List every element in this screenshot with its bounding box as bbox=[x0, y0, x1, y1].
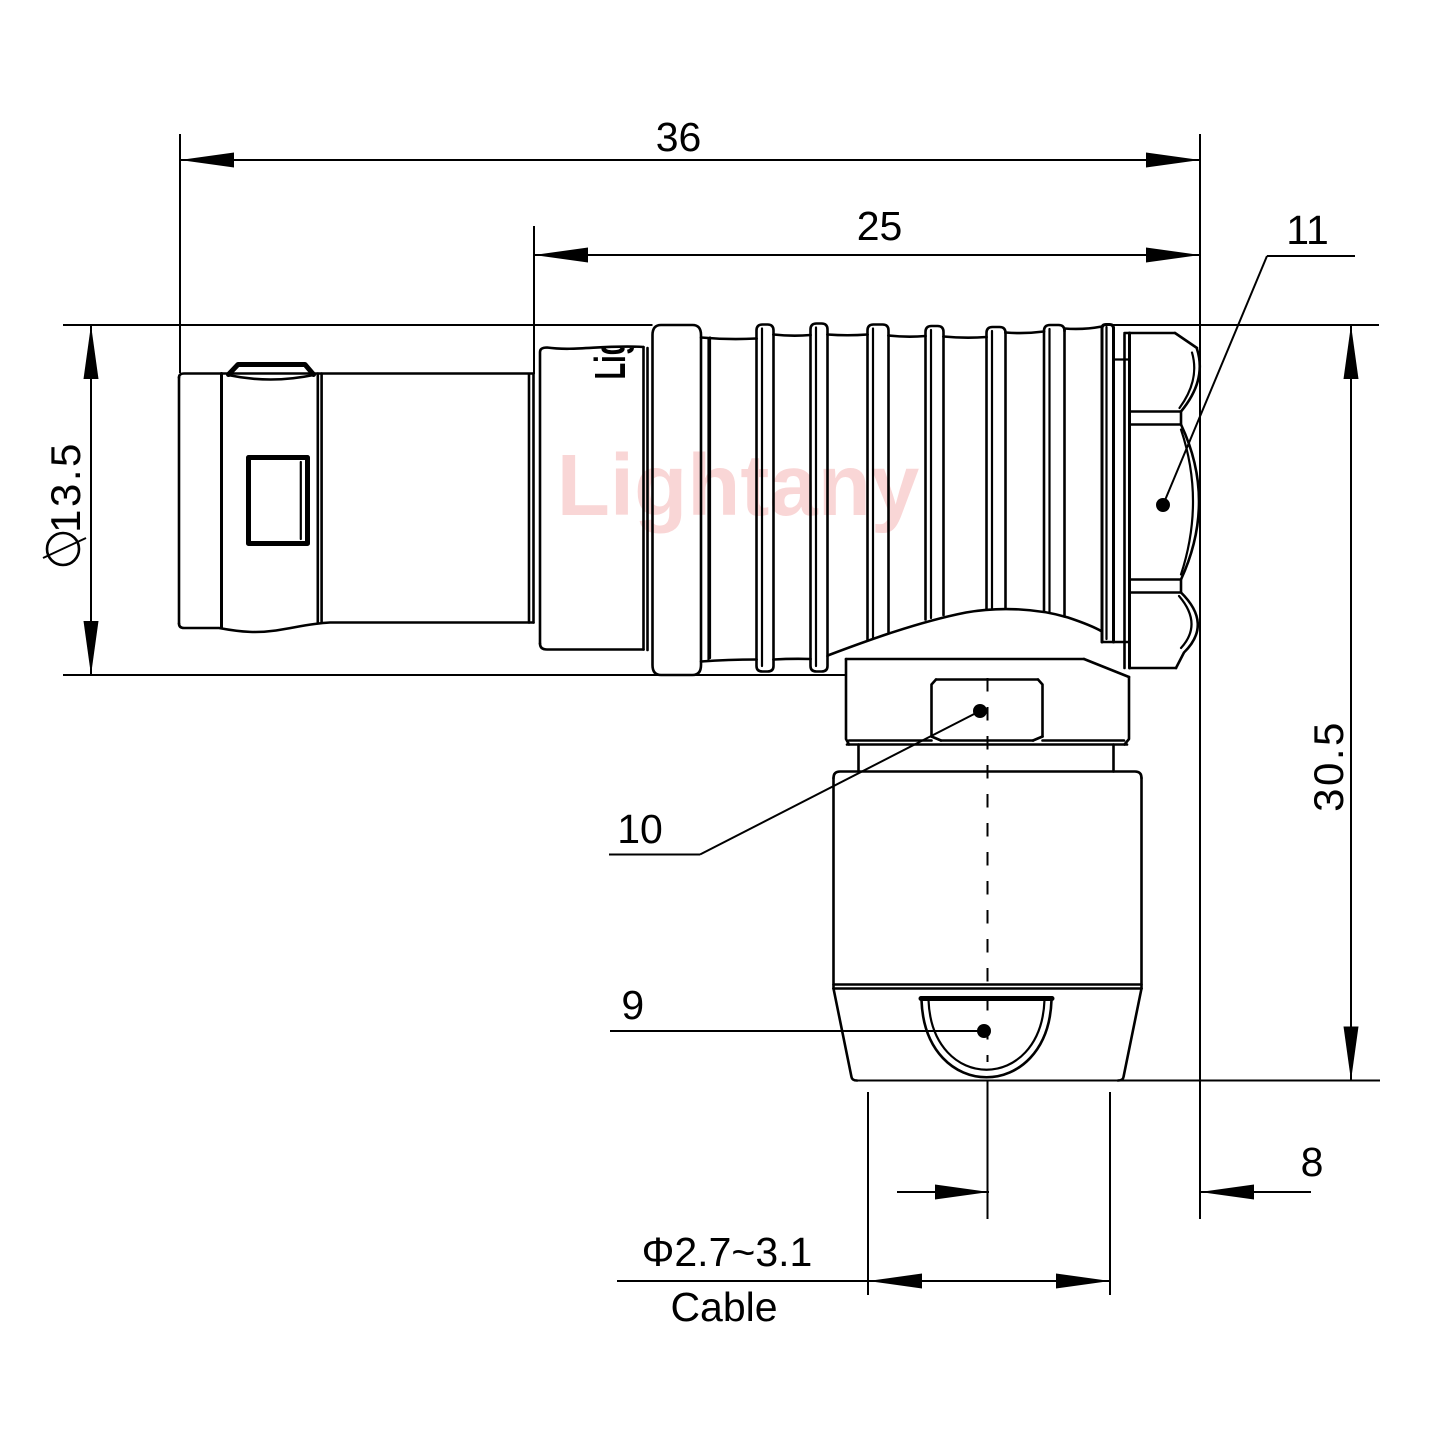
svg-text:25: 25 bbox=[857, 203, 903, 249]
svg-text:30.5: 30.5 bbox=[1305, 720, 1352, 812]
svg-text:8: 8 bbox=[1301, 1139, 1324, 1185]
svg-text:Lightany: Lightany bbox=[557, 437, 920, 534]
svg-text:9: 9 bbox=[621, 982, 644, 1028]
svg-text:36: 36 bbox=[656, 114, 702, 160]
svg-text:11: 11 bbox=[1286, 207, 1329, 253]
svg-text:13.5: 13.5 bbox=[42, 441, 89, 533]
svg-text:Cable: Cable bbox=[670, 1284, 777, 1330]
svg-text:10: 10 bbox=[617, 806, 663, 852]
svg-text:Φ2.7~3.1: Φ2.7~3.1 bbox=[642, 1229, 813, 1275]
